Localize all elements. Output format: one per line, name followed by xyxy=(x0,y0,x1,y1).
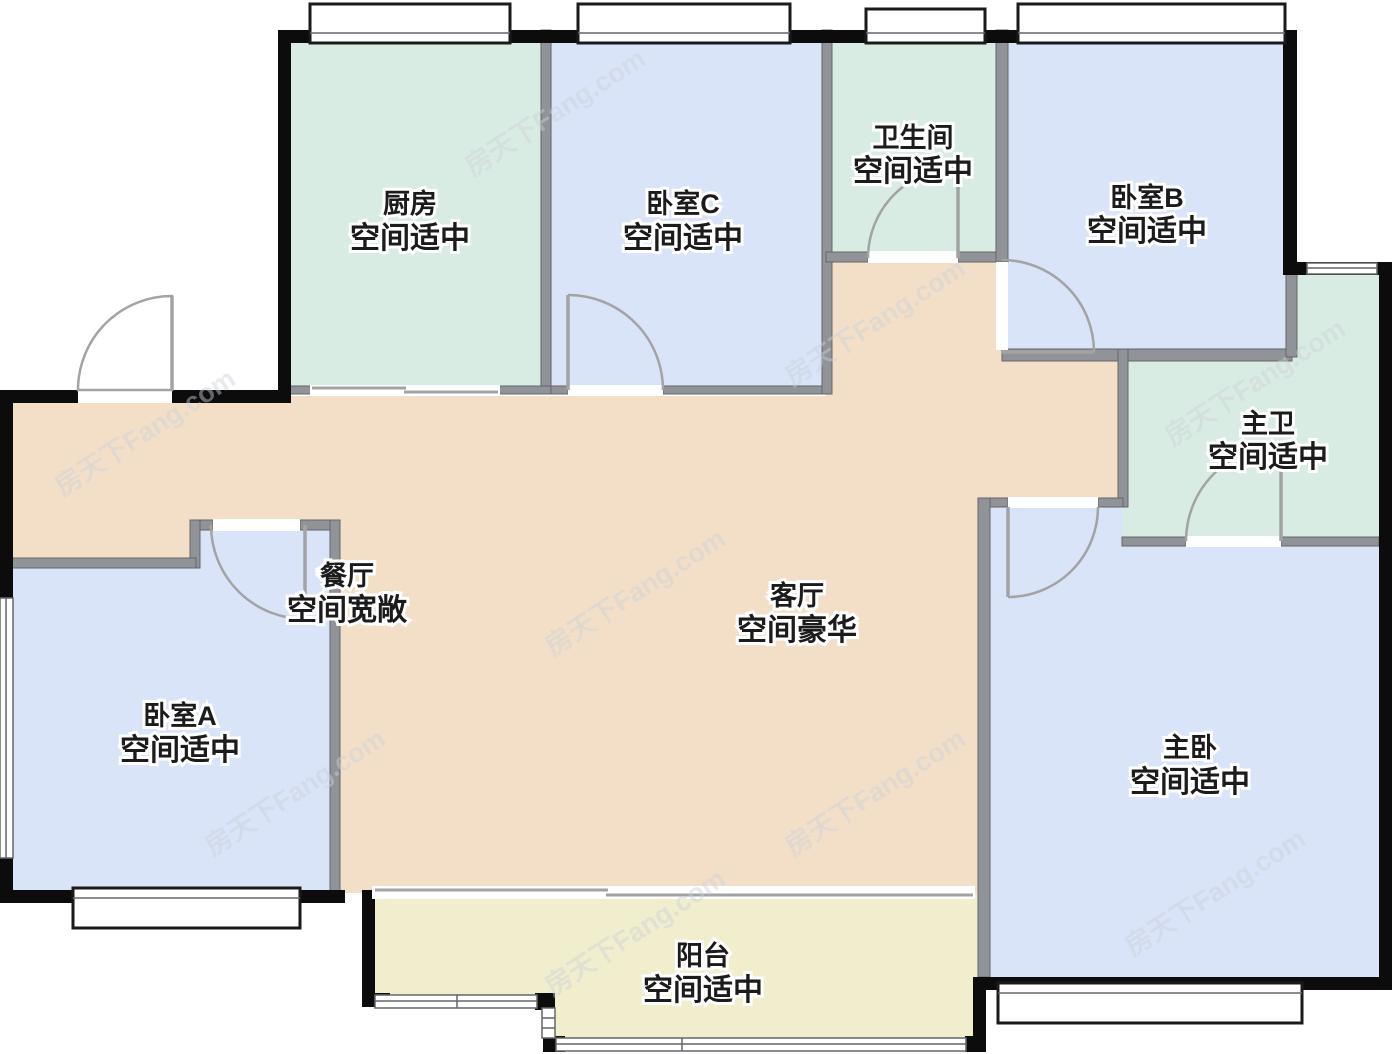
master-bath-grade: 空间适中 xyxy=(1208,441,1328,474)
bedroom-b-label: 卧室B xyxy=(1110,182,1184,213)
wall-bedroomb-right xyxy=(1283,30,1297,272)
wall-balcony-left xyxy=(362,890,375,1007)
bedroom-b-grade: 空间适中 xyxy=(1087,215,1207,248)
balcony-railing-bottom xyxy=(556,1038,966,1051)
floor-plan-svg: 房天下Fang.com 房天下Fang.com 房天下Fang.com 房天下F… xyxy=(0,0,1400,1054)
wall-masterbath-bottom-right xyxy=(1281,537,1379,546)
bathroom-label: 卫生间 xyxy=(873,123,954,153)
dining-grade: 空间宽敞 xyxy=(287,593,408,627)
balcony-label: 阳台 xyxy=(676,940,730,971)
master-bay-window xyxy=(998,983,1302,1023)
wall-living-master xyxy=(978,498,990,977)
bedroomb-bay-window xyxy=(1018,4,1285,43)
master-door-opening xyxy=(1008,497,1098,508)
living-label: 客厅 xyxy=(770,580,824,611)
master-bath-label: 主卫 xyxy=(1241,409,1295,439)
bedroom-a-label: 卧室A xyxy=(143,700,217,731)
bedroomc-door-opening xyxy=(568,385,663,395)
bathroom-window xyxy=(866,9,985,43)
bedroom-c-grade: 空间适中 xyxy=(623,222,743,255)
kitchen-bay-window xyxy=(310,4,510,43)
bedrooma-left-window xyxy=(0,598,13,858)
wall-bedrooma-step-horizontal xyxy=(6,558,196,568)
wall-bathroom-bedroomb xyxy=(996,30,1008,262)
balcony-railing-left xyxy=(375,995,537,1008)
masterbath-window xyxy=(1307,263,1377,274)
wall-kitchen-left xyxy=(278,30,291,397)
masterbath-door-opening xyxy=(1186,536,1281,547)
wall-master-top-right-stub xyxy=(1098,498,1123,507)
master-bedroom-grade: 空间适中 xyxy=(1130,766,1250,799)
wall-bedroomc-bottom-left-stub xyxy=(551,386,568,394)
dining-label: 餐厅 xyxy=(320,561,374,591)
balcony-grade: 空间适中 xyxy=(643,974,763,1007)
balcony-railing-step xyxy=(542,1008,555,1038)
wall-masterbath-left xyxy=(1118,349,1128,507)
wall-balcony-corner-d xyxy=(965,1036,986,1052)
entry-door xyxy=(78,296,172,390)
wall-bedroomc-bottom-right xyxy=(663,386,832,394)
kitchen-label: 厨房 xyxy=(383,189,437,219)
bathroom-grade: 空间适中 xyxy=(853,155,973,188)
living-grade: 空间豪华 xyxy=(737,613,857,647)
bedroom-a-grade: 空间适中 xyxy=(120,734,240,767)
bedrooma-bay-window xyxy=(73,888,300,928)
bedroom-c-label: 卧室C xyxy=(646,188,720,219)
bedrooma-door-opening xyxy=(213,519,300,531)
wall-masterbath-bottom-left xyxy=(1122,537,1186,546)
wall-right xyxy=(1379,262,1392,990)
wall-kitchen-bedroomc xyxy=(541,30,551,394)
bedroomb-door-opening xyxy=(996,262,1008,350)
kitchen-grade: 空间适中 xyxy=(350,222,470,255)
bedroomc-bay-window xyxy=(578,4,790,43)
wall-bathroom-bottom-left-stub xyxy=(826,252,868,262)
entry-opening xyxy=(78,390,172,403)
master-bedroom-label: 主卧 xyxy=(1163,733,1217,763)
wall-kitchen-bottom-right-stub xyxy=(498,386,551,394)
